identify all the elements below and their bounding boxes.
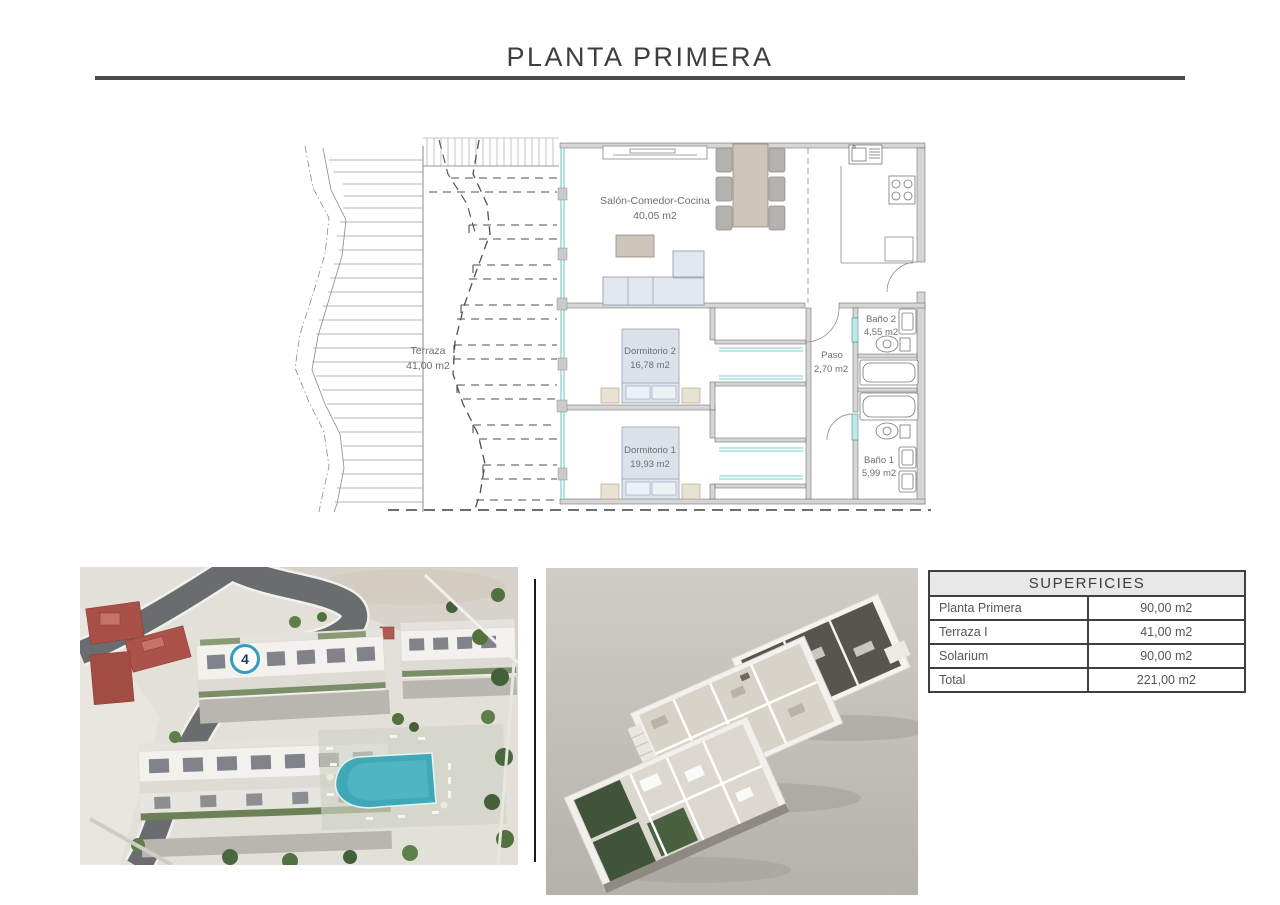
glass-wall-mullions xyxy=(557,188,567,480)
aerial-site-render: 4 xyxy=(80,567,518,865)
coffee-table xyxy=(616,235,654,257)
terrace-hatch-lines xyxy=(312,160,423,502)
dining-table xyxy=(733,144,768,227)
dashed-slope-contour xyxy=(439,140,490,512)
label-dormitorio2-name: Dormitorio 2 xyxy=(624,346,676,357)
label-dormitorio1-name: Dormitorio 1 xyxy=(624,445,676,456)
table-row-value: 41,00 m2 xyxy=(1089,621,1244,643)
kitchen-sink xyxy=(849,145,882,164)
table-row: Terraza I 41,00 m2 xyxy=(930,619,1244,643)
table-row-label: Solarium xyxy=(930,645,1089,667)
floor-plan-svg: Salón-Comedor-Cocina 40,05 m2 Terraza 41… xyxy=(283,132,933,512)
dashed-step-lines xyxy=(429,178,557,500)
label-terraza-area: 41,00 m2 xyxy=(406,360,450,372)
sideboard xyxy=(603,146,707,159)
label-terraza-name: Terraza xyxy=(410,345,445,357)
isometric-floorplan-render xyxy=(546,568,918,895)
isometric-render-svg xyxy=(546,568,918,895)
floor-plan-page: { "page": { "title": "PLANTA PRIMERA" },… xyxy=(0,0,1280,905)
terrain-contours xyxy=(295,146,423,512)
label-bano1-area: 5,99 m2 xyxy=(862,468,896,479)
label-salon-name: Salón-Comedor-Cocina xyxy=(600,195,710,207)
wardrobe-rails xyxy=(719,348,803,479)
unit-marker-number: 4 xyxy=(241,651,249,667)
label-bano1-name: Baño 1 xyxy=(864,455,894,466)
parasol xyxy=(441,802,448,809)
unit-marker-badge: 4 xyxy=(232,646,259,673)
table-row: Total 221,00 m2 xyxy=(930,667,1244,691)
table-row-value: 90,00 m2 xyxy=(1089,645,1244,667)
kitchen-stove xyxy=(889,176,915,204)
superficies-table-title: SUPERFICIES xyxy=(930,572,1244,595)
table-row-label: Total xyxy=(930,669,1089,691)
table-row-value: 90,00 m2 xyxy=(1089,597,1244,619)
label-dormitorio2-area: 16,78 m2 xyxy=(630,360,670,371)
building-block-a xyxy=(196,628,390,724)
pool-area xyxy=(318,724,506,830)
label-paso-area: 2,70 m2 xyxy=(814,364,848,375)
parasol xyxy=(327,774,334,781)
sofa xyxy=(603,251,704,305)
glass-wall-teal xyxy=(561,148,564,499)
table-row: Planta Primera 90,00 m2 xyxy=(930,595,1244,619)
pergola-slats xyxy=(423,138,559,166)
title-rule xyxy=(95,76,1185,80)
label-paso-name: Paso xyxy=(821,350,843,361)
label-bano2-area: 4,55 m2 xyxy=(864,327,898,338)
building-block-b xyxy=(400,619,517,699)
table-row: Solarium 90,00 m2 xyxy=(930,643,1244,667)
label-dormitorio1-area: 19,93 m2 xyxy=(630,459,670,470)
label-bano2-name: Baño 2 xyxy=(866,314,896,325)
aerial-render-svg: 4 xyxy=(80,567,518,865)
page-title: PLANTA PRIMERA xyxy=(0,42,1280,73)
table-row-label: Terraza I xyxy=(930,621,1089,643)
superficies-table: SUPERFICIES Planta Primera 90,00 m2 Terr… xyxy=(928,570,1246,693)
table-row-label: Planta Primera xyxy=(930,597,1089,619)
table-row-value: 221,00 m2 xyxy=(1089,669,1244,691)
floor-plan-drawing: Salón-Comedor-Cocina 40,05 m2 Terraza 41… xyxy=(283,132,933,512)
label-salon-area: 40,05 m2 xyxy=(633,210,677,222)
image-separator-line xyxy=(534,579,536,862)
